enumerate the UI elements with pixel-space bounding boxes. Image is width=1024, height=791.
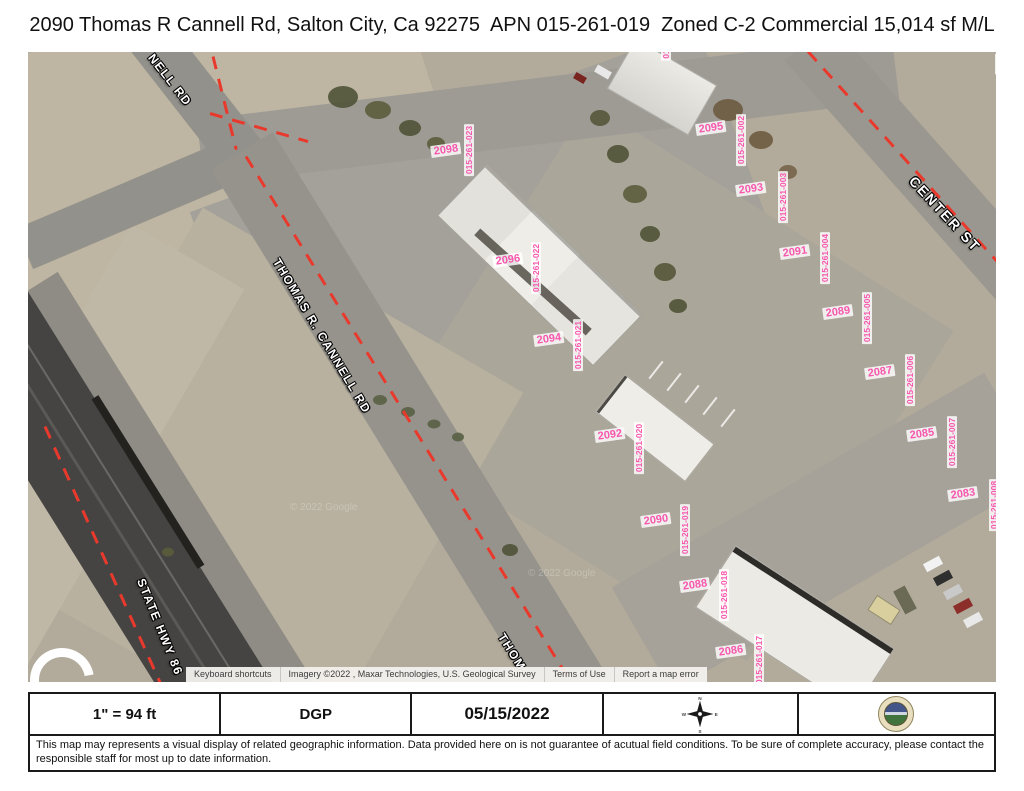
parked-car — [953, 598, 973, 614]
map-info-table: 1" = 94 ft DGP 05/15/2022 N E S W This m — [28, 692, 996, 772]
scale-cell: 1" = 94 ft — [30, 694, 221, 734]
parked-car — [963, 612, 983, 628]
report-map-error-link[interactable]: Report a map error — [614, 667, 707, 682]
tree-blob — [502, 544, 518, 556]
seal-cell — [799, 694, 994, 734]
imagery-attribution: Imagery ©2022 , Maxar Technologies, U.S.… — [280, 667, 544, 682]
parcel-apn-truncated: 015- — [995, 53, 996, 74]
page-title: 2090 Thomas R Cannell Rd, Salton City, C… — [0, 14, 1024, 37]
parked-car — [933, 570, 953, 586]
tree-blob — [640, 226, 660, 242]
map-attribution-bar: Keyboard shortcuts Imagery ©2022 , Maxar… — [186, 667, 707, 682]
tree-blob — [399, 120, 421, 136]
keyboard-shortcuts-button[interactable]: Keyboard shortcuts — [186, 667, 280, 682]
date-cell: 05/15/2022 — [412, 694, 603, 734]
county-seal-logo — [878, 696, 914, 732]
parcel-apn: 015-261-019 — [680, 504, 690, 556]
parcel-apn: 015-261-008 — [989, 479, 996, 531]
parcel-apn-truncated: 01 — [661, 52, 671, 61]
parked-car — [923, 556, 943, 572]
parcel-apn: 015-261-005 — [862, 292, 872, 344]
tree-blob — [669, 299, 687, 313]
palm-tree — [452, 433, 464, 442]
tree-blob — [328, 86, 358, 108]
parcel-apn: 015-261-007 — [947, 416, 957, 468]
tree-blob — [607, 145, 629, 163]
parcel-apn: 015-261-022 — [531, 242, 541, 294]
parcel-apn: 015-261-004 — [820, 232, 830, 284]
compass-rose-icon: N E S W — [681, 695, 719, 733]
tree-blob — [590, 110, 610, 126]
tree-blob — [654, 263, 676, 281]
parcel-apn: 015-261-003 — [778, 171, 788, 223]
map-watermark: © 2022 Google — [290, 502, 357, 513]
palm-tree — [373, 395, 387, 405]
tree-blob — [623, 185, 647, 203]
parked-car — [943, 584, 963, 600]
compass-cell: N E S W — [604, 694, 799, 734]
parcel-apn: 015-261-018 — [719, 569, 729, 621]
parcel-apn: 015-261-020 — [634, 422, 644, 474]
map-info-row: 1" = 94 ft DGP 05/15/2022 N E S W — [30, 694, 994, 736]
parcel-map-page: 2090 Thomas R Cannell Rd, Salton City, C… — [0, 0, 1024, 791]
shed-roof — [867, 595, 900, 625]
parcel-apn: 015-261-002 — [736, 114, 746, 166]
preparer-cell: DGP — [221, 694, 412, 734]
map-watermark: © 2022 Google — [528, 568, 595, 579]
tree-blob — [162, 548, 174, 557]
svg-text:N: N — [698, 696, 702, 702]
terms-of-use-link[interactable]: Terms of Use — [544, 667, 614, 682]
shrub-blob — [749, 131, 773, 149]
svg-text:W: W — [682, 712, 687, 718]
palm-tree — [428, 420, 441, 429]
parcel-apn: 015-261-021 — [573, 319, 583, 371]
parcel-apn: 015-261-017 — [754, 634, 764, 682]
tree-blob — [365, 101, 391, 119]
svg-text:E: E — [715, 712, 718, 718]
parcel-apn: 015-261-006 — [905, 354, 915, 406]
svg-text:S: S — [699, 729, 702, 733]
disclaimer-text: This map may represents a visual display… — [30, 736, 994, 770]
aerial-map[interactable]: © 2022 Google © 2022 Google NELL RD THOM… — [28, 52, 996, 682]
parcel-apn: 015-261-023 — [464, 124, 474, 176]
